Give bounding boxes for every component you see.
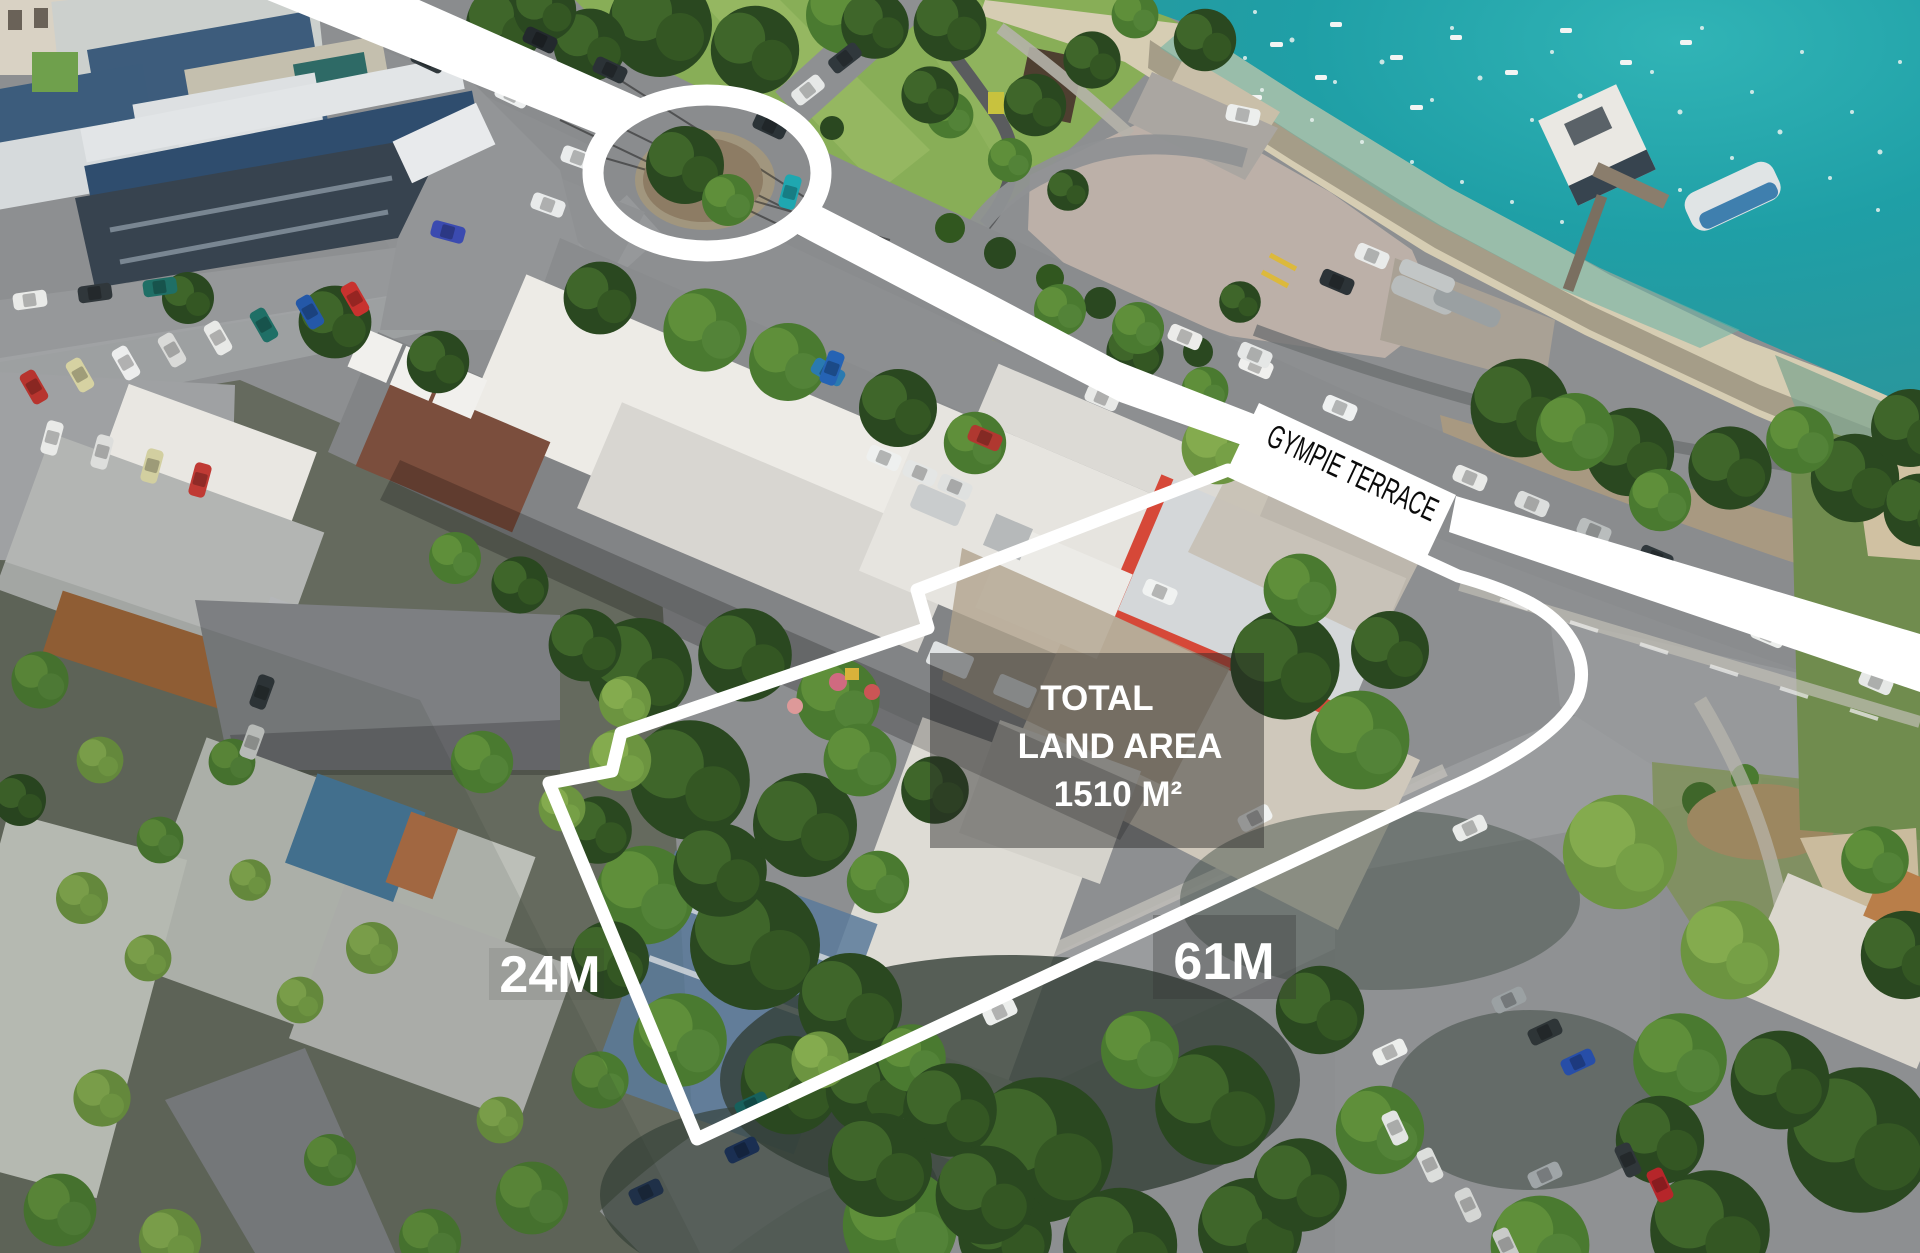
svg-text:24M: 24M: [499, 946, 600, 1004]
svg-text:LAND AREA: LAND AREA: [1018, 727, 1223, 766]
svg-text:61M: 61M: [1173, 933, 1274, 991]
svg-text:TOTAL: TOTAL: [1040, 679, 1153, 718]
svg-text:1510 M²: 1510 M²: [1054, 775, 1182, 814]
